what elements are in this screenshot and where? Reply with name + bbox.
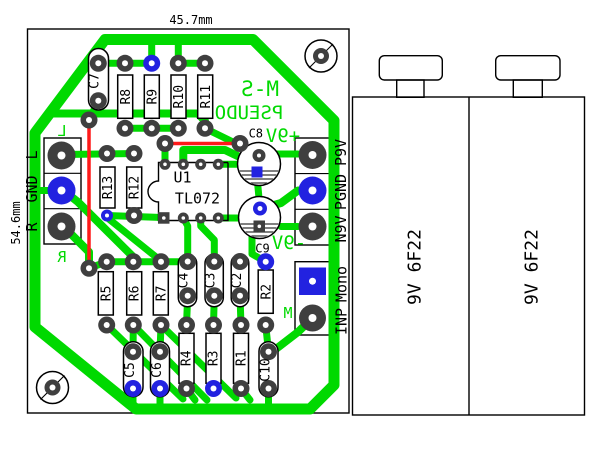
label-conn-l: L	[23, 150, 41, 159]
label-r5: R5	[99, 286, 114, 302]
dimension-width-label: 45.7mm	[169, 13, 212, 27]
label-conn-n9v: N9V	[332, 215, 350, 242]
label-conn-mono: Mono	[332, 266, 350, 302]
mounting-hole-bottom-left	[37, 372, 69, 404]
label-r1: R1	[234, 350, 249, 366]
battery-2-label: 9V 6F22	[521, 229, 542, 305]
label-r10: R10	[172, 85, 187, 108]
silk-title-line2: PSEUDO	[215, 102, 284, 124]
battery-1-label: 9V 6F22	[404, 229, 425, 305]
label-conn-p9v: P9V	[332, 139, 350, 166]
batteries: 9V 6F22 9V 6F22	[353, 56, 585, 415]
pcb-drawing: 45.7mm 54.6mm C7 R8 R9 R10 R11 R13 R12 R…	[0, 0, 610, 464]
label-conn-r: R	[23, 222, 41, 232]
label-c7: C7	[88, 73, 103, 89]
label-r2: R2	[259, 284, 274, 300]
label-r4: R4	[179, 350, 194, 366]
mounting-hole-top-right	[305, 40, 337, 72]
label-u1-ref: U1	[173, 169, 191, 187]
label-c6: C6	[150, 362, 165, 378]
label-r6: R6	[128, 286, 143, 302]
label-r11: R11	[199, 85, 214, 108]
label-r12: R12	[128, 176, 143, 199]
label-r7: R7	[154, 286, 169, 302]
silk-rail-neg: -9V	[272, 232, 306, 254]
silk-title-line1: M-S	[241, 77, 279, 101]
label-c3: C3	[204, 273, 219, 289]
silk-rail-pos: +9V	[266, 125, 300, 147]
silk-channel-right: R	[57, 248, 67, 266]
label-r9: R9	[145, 89, 160, 105]
label-c4: C4	[177, 273, 192, 289]
label-u1-part: TL072	[175, 190, 220, 208]
label-conn-pgnd: PGND	[332, 174, 350, 210]
battery-1-connector	[379, 56, 442, 98]
dimension-height-label: 54.6mm	[9, 201, 23, 244]
pcb-layout-diagram: 45.7mm 54.6mm C7 R8 R9 R10 R11 R13 R12 R…	[0, 0, 610, 464]
silk-mono-mark: M	[283, 304, 292, 322]
label-r8: R8	[119, 89, 134, 105]
label-c9: C9	[255, 242, 269, 256]
label-c2: C2	[230, 273, 245, 289]
label-c5: C5	[123, 362, 138, 378]
label-c8: C8	[249, 127, 263, 141]
battery-2-connector	[496, 56, 560, 98]
label-conn-gnd: GND	[23, 175, 41, 202]
label-conn-inp: INP	[332, 308, 350, 335]
silk-channel-left: L	[57, 122, 66, 140]
label-r13: R13	[101, 176, 116, 199]
label-r3: R3	[207, 350, 222, 366]
label-c10: C10	[259, 358, 274, 381]
pad-c8-blue	[252, 167, 263, 178]
